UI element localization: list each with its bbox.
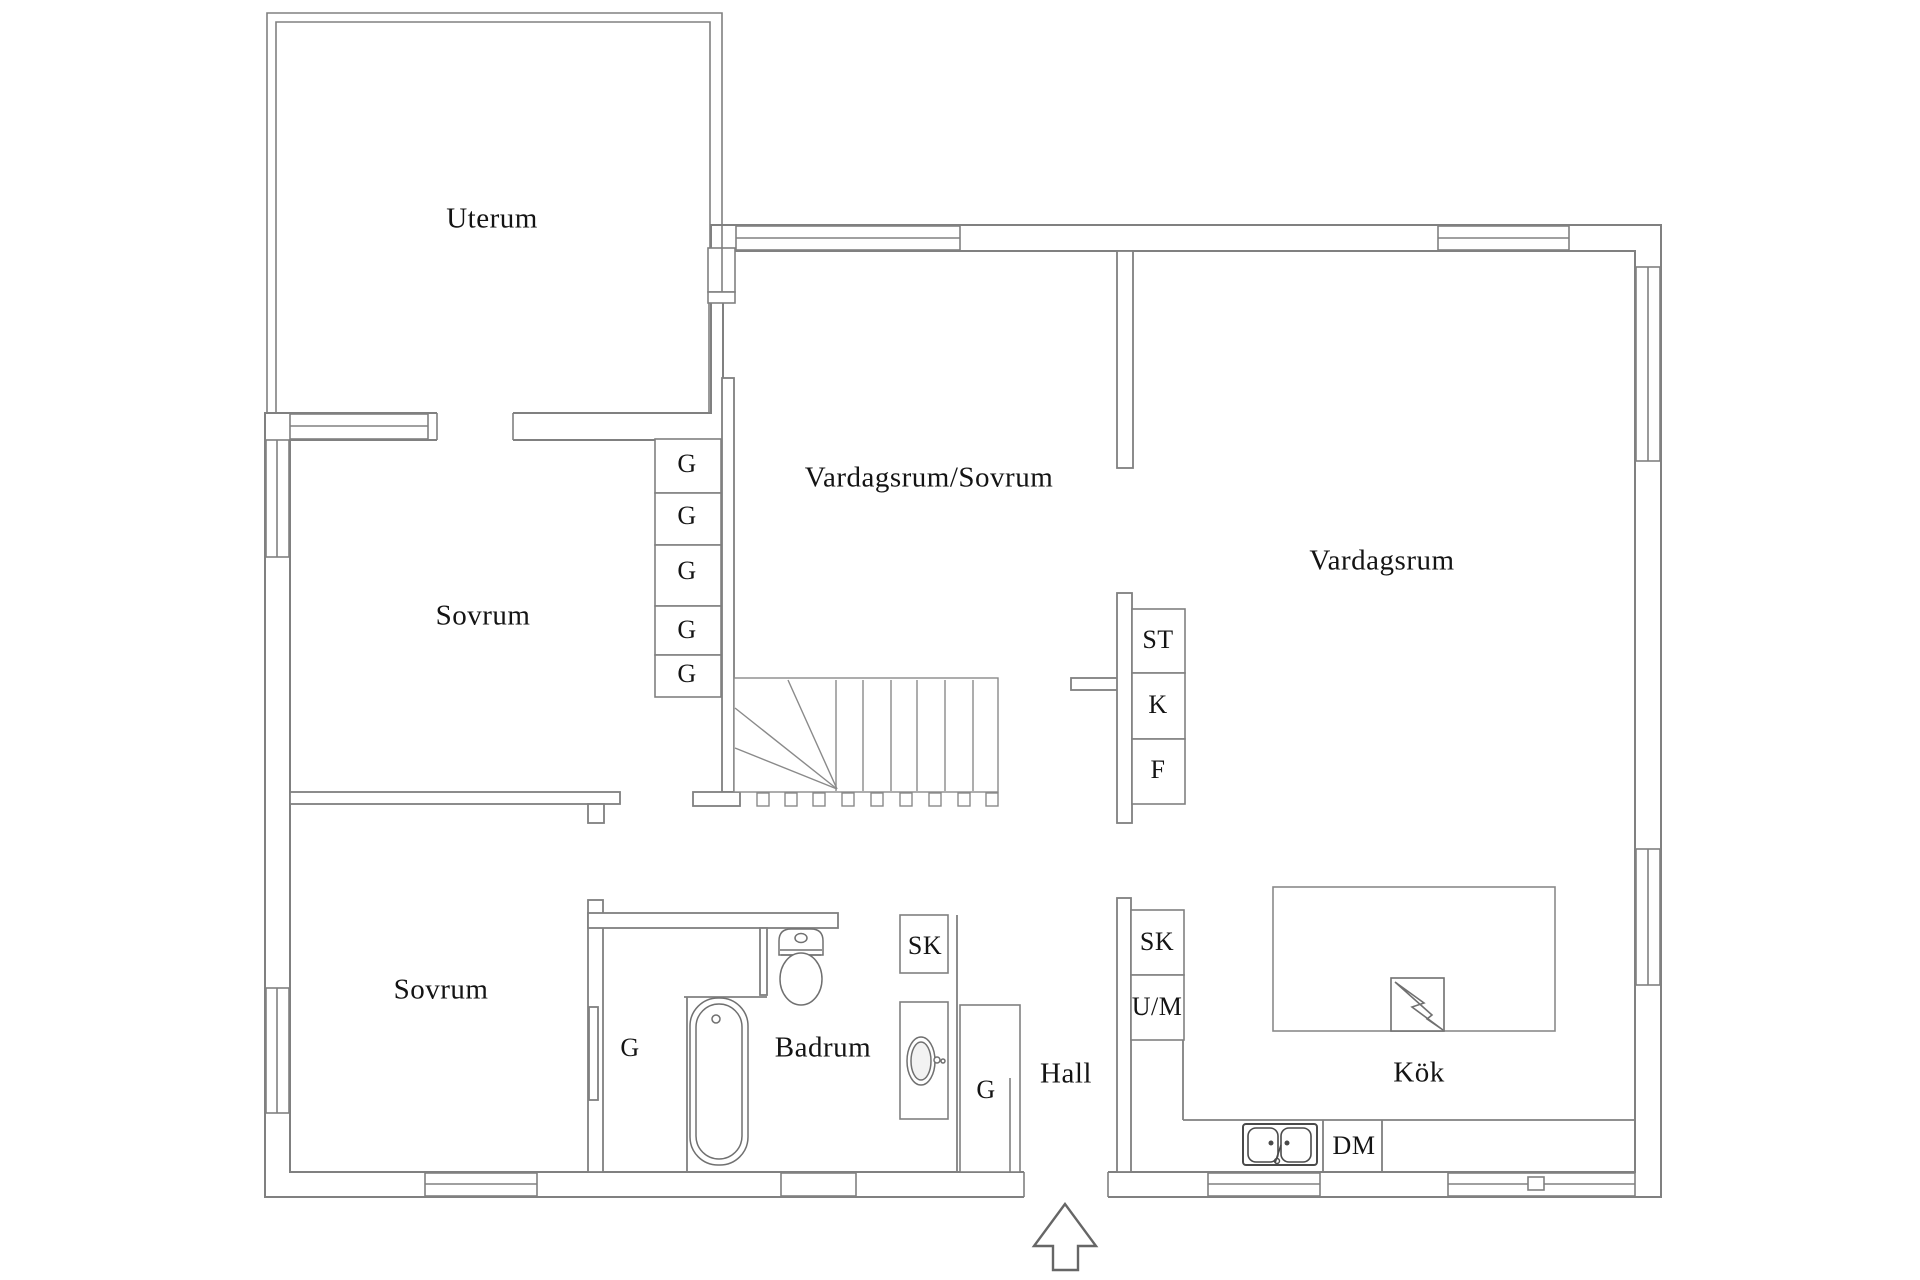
closet-label-sk-badrum: SK <box>908 933 942 959</box>
closet-label-um: U/M <box>1132 994 1183 1020</box>
staircase <box>734 678 998 806</box>
entrance-arrow-icon <box>1034 1204 1096 1270</box>
stove-icon <box>1391 978 1444 1031</box>
room-label-sovrum-upper: Sovrum <box>436 602 531 631</box>
wall-badrum-top <box>588 913 838 928</box>
wall-hall-kitchen <box>1117 898 1131 1172</box>
closet-door-leaf <box>589 1007 598 1100</box>
wall-upper-divider <box>1117 251 1133 468</box>
room-label-uterum: Uterum <box>446 205 538 234</box>
closet-label-sk-kok: SK <box>1140 929 1174 955</box>
wall-stair-left <box>722 378 734 792</box>
kitchen-sink-icon <box>1243 1124 1317 1165</box>
closet-label-g-badrum: G <box>620 1035 639 1061</box>
closet-label-dm: DM <box>1333 1133 1376 1159</box>
wall-stair-foot <box>693 792 740 806</box>
closet-label-g-hall: G <box>976 1077 995 1103</box>
room-label-vardagsrum-sovrum: Vardagsrum/Sovrum <box>805 464 1054 493</box>
window-uterum-wall <box>290 414 428 439</box>
window-top-2 <box>1438 226 1569 250</box>
floorplan-drawing <box>0 0 1920 1280</box>
door-opening-uterum <box>437 411 513 442</box>
window-bottom-1 <box>425 1173 537 1196</box>
window-right-1 <box>1636 267 1660 461</box>
room-label-kok: Kök <box>1393 1059 1444 1088</box>
door-opening-badrum <box>781 1173 856 1196</box>
closet-label-g3: G <box>677 558 696 584</box>
bathtub-icon <box>690 998 748 1165</box>
closet-label-g1: G <box>677 451 696 477</box>
window-left-1 <box>266 440 289 557</box>
wall-sovrum-divider <box>290 792 620 804</box>
closet-label-g4: G <box>677 617 696 643</box>
room-label-sovrum-lower: Sovrum <box>394 976 489 1005</box>
wall-sovrum-tab <box>588 804 604 823</box>
entry-door-opening <box>1024 1170 1108 1199</box>
window-top-1 <box>736 226 960 250</box>
window-right-2 <box>1636 849 1660 985</box>
toilet-icon <box>779 929 823 1005</box>
closet-label-g5: G <box>677 661 696 687</box>
window-bottom-2 <box>1208 1173 1320 1196</box>
room-label-hall: Hall <box>1040 1060 1092 1089</box>
closet-label-k: K <box>1148 692 1167 718</box>
closet-label-f: F <box>1151 757 1166 783</box>
window-bottom-3 <box>1448 1173 1635 1196</box>
wall-stub-mid <box>1071 678 1118 690</box>
window-left-2 <box>266 988 289 1113</box>
room-label-vardagsrum: Vardagsrum <box>1309 547 1454 576</box>
wall-stkf-strip <box>1117 593 1132 823</box>
closet-label-st: ST <box>1142 627 1173 653</box>
floorplan-canvas: Uterum Sovrum Vardagsrum/Sovrum Vardagsr… <box>0 0 1920 1280</box>
stair-railing-posts <box>757 793 998 806</box>
room-label-badrum: Badrum <box>775 1034 871 1063</box>
closet-label-g2: G <box>677 503 696 529</box>
wall-badrum-stub <box>760 928 767 995</box>
